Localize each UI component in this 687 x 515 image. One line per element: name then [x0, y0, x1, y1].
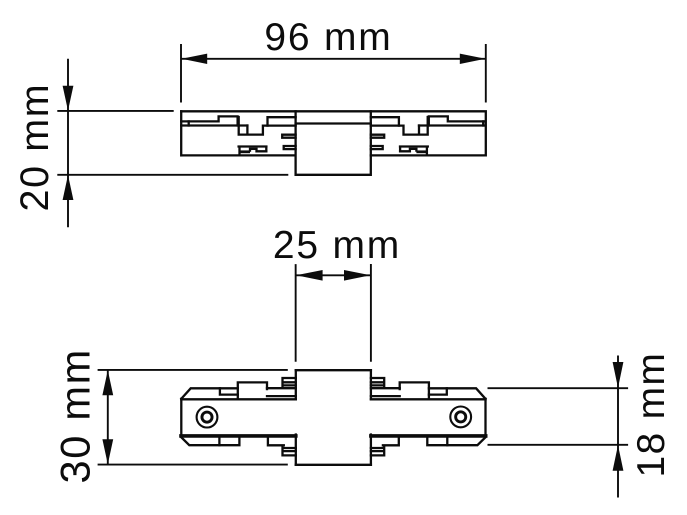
svg-text:20 mm: 20 mm: [13, 83, 57, 212]
svg-text:30 mm: 30 mm: [51, 348, 98, 483]
svg-text:18 mm: 18 mm: [630, 352, 673, 478]
svg-text:25 mm: 25 mm: [273, 224, 401, 267]
svg-text:96 mm: 96 mm: [264, 16, 392, 59]
